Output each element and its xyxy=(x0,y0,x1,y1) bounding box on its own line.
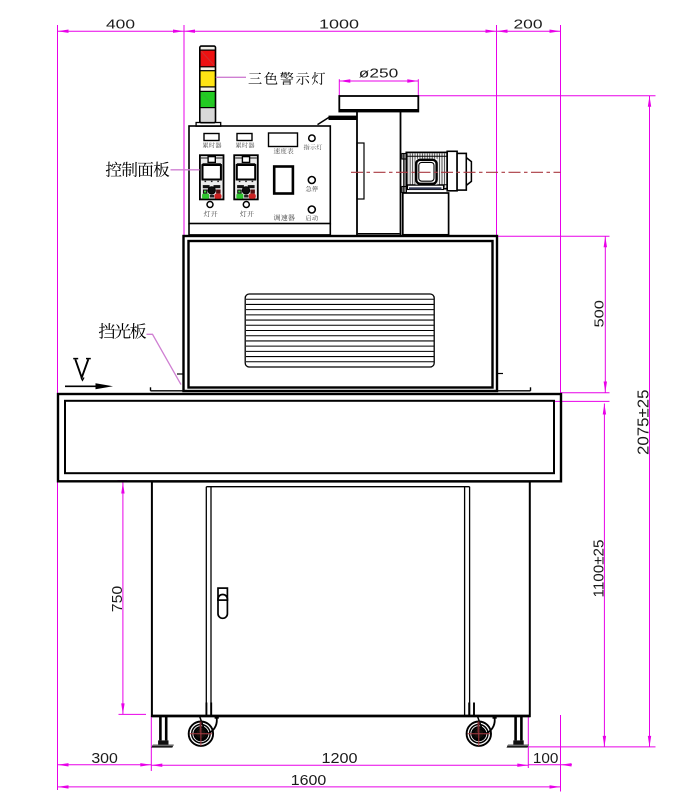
svg-text:300: 300 xyxy=(91,750,118,767)
svg-text:1100±25: 1100±25 xyxy=(590,540,607,598)
svg-text:2075±25: 2075±25 xyxy=(636,389,653,455)
svg-text:750: 750 xyxy=(109,586,126,613)
svg-text:1600: 1600 xyxy=(291,772,327,789)
svg-text:1000: 1000 xyxy=(319,17,359,31)
svg-text:100: 100 xyxy=(533,750,559,767)
svg-text:ø250: ø250 xyxy=(359,67,399,81)
svg-text:500: 500 xyxy=(592,300,606,328)
svg-text:200: 200 xyxy=(514,17,543,31)
svg-text:400: 400 xyxy=(106,17,135,31)
svg-text:1200: 1200 xyxy=(322,750,358,767)
